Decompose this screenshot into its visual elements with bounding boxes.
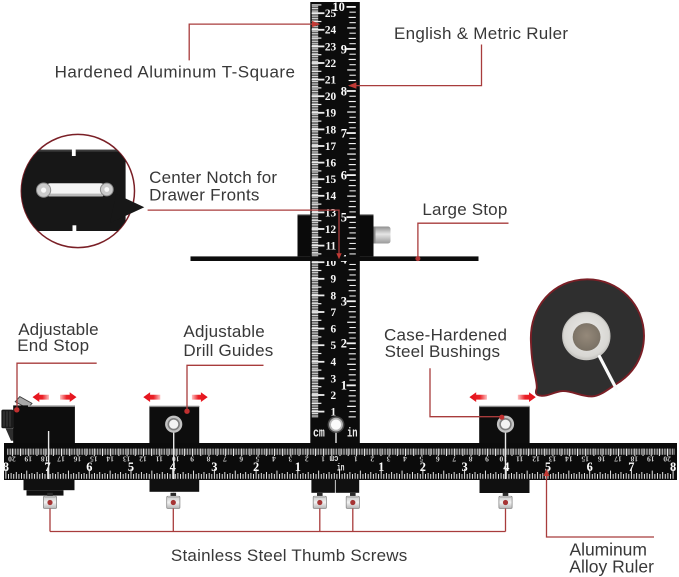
svg-text:20: 20 <box>8 454 16 463</box>
svg-text:3: 3 <box>288 454 292 463</box>
svg-text:cm: cm <box>329 453 338 463</box>
svg-text:Steel Bushings: Steel Bushings <box>385 342 500 361</box>
svg-text:22: 22 <box>325 58 337 70</box>
svg-text:8: 8 <box>206 454 210 463</box>
svg-text:Alloy Ruler: Alloy Ruler <box>569 556 654 576</box>
svg-text:1: 1 <box>354 454 358 463</box>
svg-text:7: 7 <box>223 454 227 463</box>
svg-text:Hardened Aluminum T-Square: Hardened Aluminum T-Square <box>55 62 295 81</box>
svg-text:8: 8 <box>331 290 337 302</box>
svg-text:15: 15 <box>325 174 337 186</box>
svg-text:17: 17 <box>57 454 65 463</box>
svg-text:9: 9 <box>190 454 194 463</box>
svg-text:7: 7 <box>452 454 456 463</box>
svg-text:12: 12 <box>325 224 337 236</box>
svg-text:14: 14 <box>325 191 337 203</box>
svg-text:2: 2 <box>331 390 337 402</box>
svg-text:6: 6 <box>331 324 337 336</box>
svg-text:3: 3 <box>331 373 337 385</box>
svg-text:12: 12 <box>532 454 540 463</box>
svg-text:2: 2 <box>305 454 309 463</box>
svg-text:19: 19 <box>325 108 337 120</box>
svg-text:6: 6 <box>341 168 347 182</box>
svg-text:19: 19 <box>24 454 32 463</box>
svg-text:English & Metric Ruler: English & Metric Ruler <box>394 24 568 43</box>
svg-text:16: 16 <box>598 454 606 463</box>
svg-text:9: 9 <box>331 274 337 286</box>
svg-text:in: in <box>337 463 344 475</box>
svg-text:Stainless Steel Thumb Screws: Stainless Steel Thumb Screws <box>171 546 407 565</box>
svg-text:End Stop: End Stop <box>17 336 89 355</box>
svg-text:20: 20 <box>325 91 337 103</box>
svg-text:14: 14 <box>106 454 114 463</box>
svg-text:4: 4 <box>331 357 337 369</box>
svg-text:Drawer Fronts: Drawer Fronts <box>149 186 259 205</box>
svg-text:8: 8 <box>468 454 472 463</box>
svg-text:1: 1 <box>321 454 325 463</box>
svg-text:4: 4 <box>403 454 407 463</box>
svg-text:3: 3 <box>387 454 391 463</box>
svg-text:19: 19 <box>647 454 655 463</box>
svg-text:24: 24 <box>325 25 337 37</box>
svg-text:6: 6 <box>436 454 440 463</box>
svg-text:4: 4 <box>272 454 276 463</box>
svg-text:5: 5 <box>331 340 337 352</box>
svg-text:23: 23 <box>325 41 337 53</box>
svg-text:9: 9 <box>485 454 489 463</box>
svg-text:10: 10 <box>332 0 344 14</box>
svg-text:16: 16 <box>325 158 337 170</box>
svg-text:1: 1 <box>341 379 347 393</box>
svg-text:7: 7 <box>341 126 347 140</box>
svg-text:13: 13 <box>325 207 337 219</box>
svg-text:Adjustable: Adjustable <box>183 322 264 341</box>
svg-text:Drill Guides: Drill Guides <box>183 341 273 360</box>
svg-text:Center Notch for: Center Notch for <box>149 168 277 187</box>
svg-text:7: 7 <box>331 307 337 319</box>
svg-text:Large Stop: Large Stop <box>422 200 507 219</box>
svg-text:6: 6 <box>239 454 243 463</box>
svg-text:9: 9 <box>341 42 347 56</box>
svg-text:16: 16 <box>73 454 81 463</box>
svg-text:21: 21 <box>325 75 337 87</box>
svg-text:11: 11 <box>156 454 163 463</box>
svg-text:11: 11 <box>326 241 337 253</box>
svg-text:2: 2 <box>341 337 347 351</box>
svg-text:cm: cm <box>313 427 325 441</box>
svg-text:5: 5 <box>341 210 347 224</box>
svg-text:17: 17 <box>325 141 337 153</box>
svg-text:17: 17 <box>614 454 622 463</box>
svg-text:12: 12 <box>139 454 147 463</box>
svg-text:in: in <box>347 427 358 441</box>
svg-text:18: 18 <box>325 124 337 136</box>
svg-text:3: 3 <box>341 295 347 309</box>
svg-text:14: 14 <box>565 454 573 463</box>
svg-text:8: 8 <box>341 84 347 98</box>
svg-text:2: 2 <box>370 454 374 463</box>
svg-text:11: 11 <box>516 454 523 463</box>
